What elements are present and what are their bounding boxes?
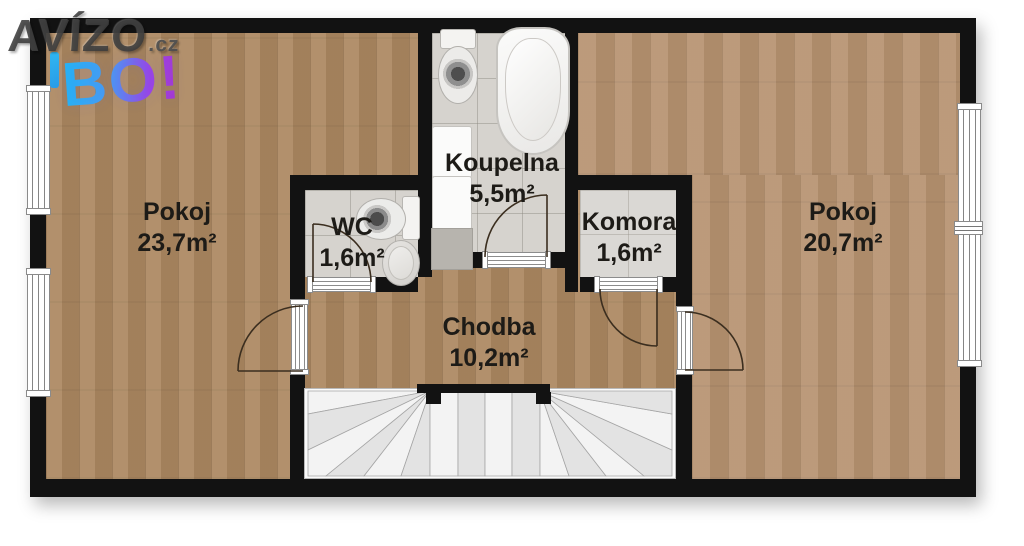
door-threshold xyxy=(677,307,693,374)
toilet-icon xyxy=(438,46,478,104)
watermark-logo: AVÍZO.cz BO! xyxy=(8,10,182,117)
door-threshold xyxy=(483,252,550,268)
shower-tray-icon xyxy=(431,228,473,270)
room-area: 5,5m² xyxy=(437,179,567,210)
window-divider-icon xyxy=(954,221,983,235)
room-area: 1,6m² xyxy=(300,243,404,274)
room-label-wc: WC 1,6m² xyxy=(300,212,404,274)
room-label-pokoj-left: Pokoj 23,7m² xyxy=(77,197,277,259)
room-name: Koupelna xyxy=(437,148,567,179)
room-area: 10,2m² xyxy=(389,343,589,374)
wall xyxy=(580,277,595,292)
room-label-komora: Komora 1,6m² xyxy=(575,207,683,269)
wall xyxy=(676,372,692,479)
door-threshold xyxy=(595,277,662,292)
room-area: 1,6m² xyxy=(575,238,683,269)
room-pokoj-right-floor-upper xyxy=(578,33,960,175)
wall xyxy=(565,175,692,190)
logo-badge-text: BO! xyxy=(60,42,184,121)
room-name: WC xyxy=(300,212,404,243)
window-icon xyxy=(27,268,50,397)
door-threshold xyxy=(291,300,308,374)
bathtub-basin xyxy=(505,38,561,141)
wall xyxy=(290,372,305,479)
room-label-koupelna: Koupelna 5,5m² xyxy=(437,148,567,210)
stairs-icon xyxy=(304,388,676,479)
stair-newel-post xyxy=(536,392,551,404)
room-name: Chodba xyxy=(389,312,589,343)
room-area: 23,7m² xyxy=(77,228,277,259)
wall xyxy=(30,479,976,497)
wall xyxy=(418,33,432,277)
room-name: Komora xyxy=(575,207,683,238)
stair-newel-post xyxy=(426,392,441,404)
window-icon xyxy=(958,103,981,367)
room-label-pokoj-right: Pokoj 20,7m² xyxy=(743,197,943,259)
bathtub-icon xyxy=(496,27,570,155)
room-label-chodba: Chodba 10,2m² xyxy=(389,312,589,374)
door-threshold xyxy=(308,277,375,292)
floor-plan-image: Pokoj 23,7m² WC 1,6m² Koupelna 5,5m² Kom… xyxy=(0,0,1024,546)
wall xyxy=(290,175,432,190)
logo-badge-row: BO! xyxy=(50,46,182,117)
room-area: 20,7m² xyxy=(743,228,943,259)
room-name: Pokoj xyxy=(743,197,943,228)
room-name: Pokoj xyxy=(77,197,277,228)
